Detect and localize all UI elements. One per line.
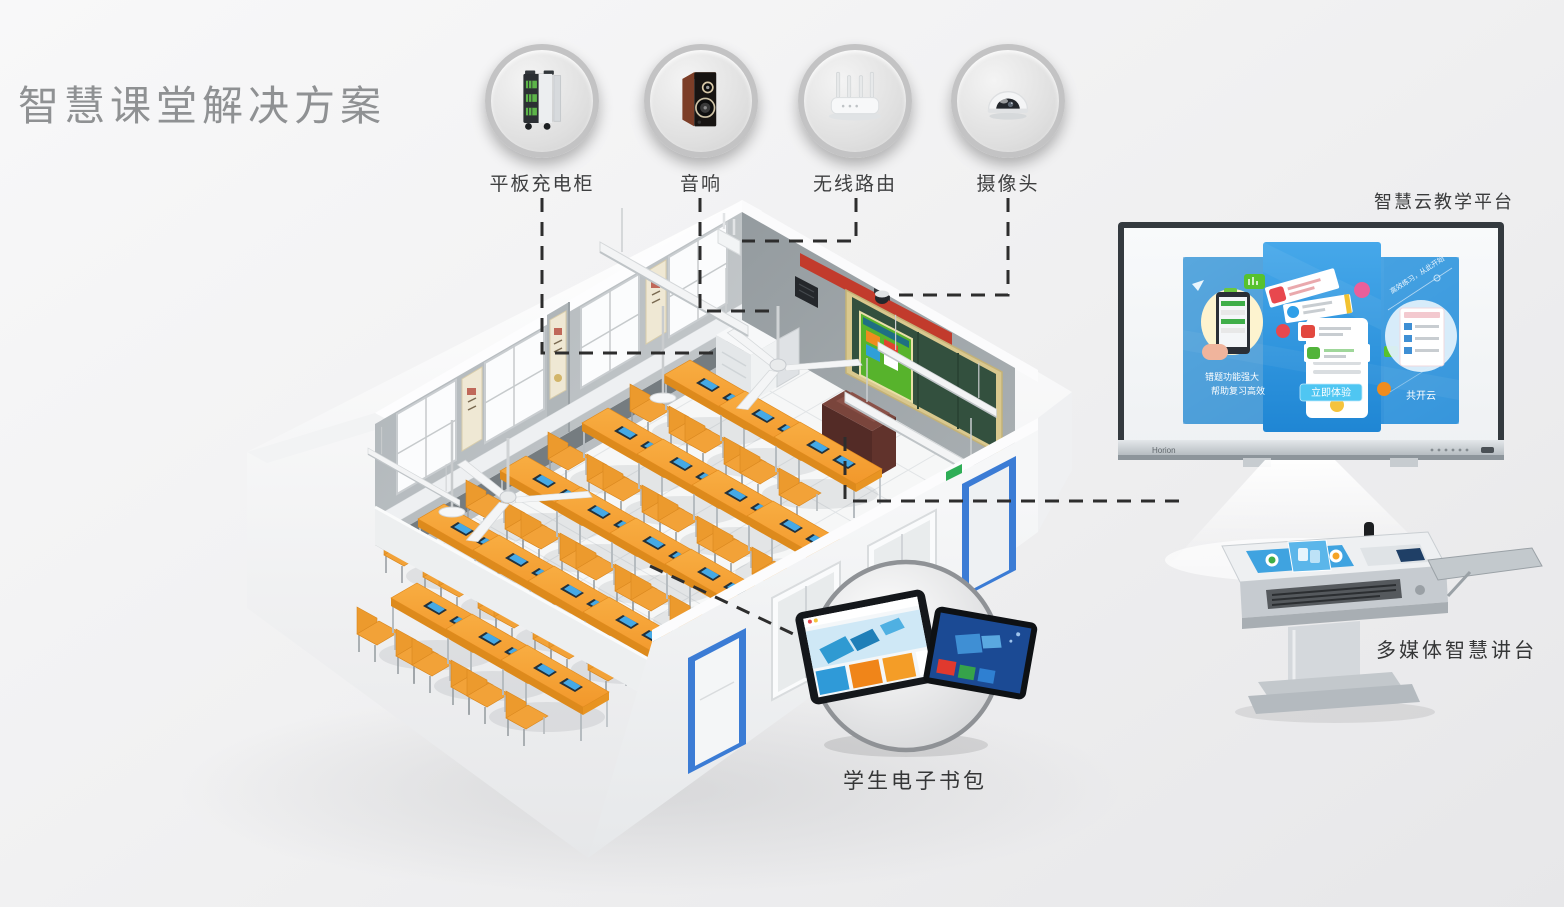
ebag-label: 学生电子书包: [840, 765, 990, 795]
speaker-label: 音响: [626, 169, 776, 196]
display-left-line2: 帮助复习高效: [1211, 385, 1265, 396]
charging-cabinet-label: 平板充电柜: [467, 169, 617, 196]
cloud-platform-display: 错题功能强大 帮助复习高效: [1118, 222, 1504, 467]
speaker-icon: [644, 44, 758, 158]
smart-classroom-infographic: 错题功能强大 帮助复习高效: [0, 0, 1564, 907]
device-speaker: 音响: [626, 44, 776, 196]
router-label: 无线路由: [780, 169, 930, 196]
device-router: 无线路由: [780, 44, 930, 196]
display-left-line1: 错题功能强大: [1205, 371, 1259, 382]
cta-button-label: 立即体验: [1311, 386, 1351, 399]
smart-podium: [1222, 522, 1542, 723]
camera-icon: [951, 44, 1065, 158]
device-charging-cabinet: 平板充电柜: [467, 44, 617, 196]
podium-label: 多媒体智慧讲台: [1376, 634, 1537, 663]
connector-camera: [893, 198, 1008, 295]
display-brand: Horion: [1152, 446, 1176, 455]
charging-cabinet-icon: [485, 44, 599, 158]
display-cloud-label: 共开云: [1406, 390, 1436, 402]
router-icon: [798, 44, 912, 158]
page-title: 智慧课堂解决方案: [18, 72, 386, 132]
device-camera: 摄像头: [933, 44, 1083, 196]
camera-label: 摄像头: [933, 169, 1083, 196]
platform-label: 智慧云教学平台: [1374, 188, 1514, 214]
